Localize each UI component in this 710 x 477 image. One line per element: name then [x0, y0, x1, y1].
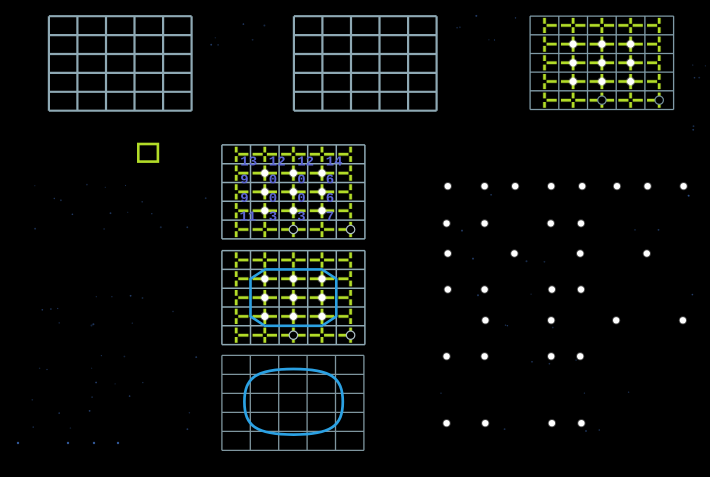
- svg-text:9: 9: [240, 172, 248, 188]
- svg-text:14: 14: [326, 154, 343, 170]
- svg-text:6: 6: [326, 172, 334, 188]
- svg-text:7: 7: [326, 210, 334, 226]
- svg-text:11: 11: [240, 210, 257, 226]
- svg-text:9: 9: [240, 191, 248, 207]
- svg-text:12: 12: [269, 154, 286, 170]
- svg-text:0: 0: [297, 172, 305, 188]
- svg-text:0: 0: [269, 191, 277, 207]
- svg-text:0: 0: [269, 172, 277, 188]
- svg-text:13: 13: [240, 154, 257, 170]
- svg-text:0: 0: [297, 191, 305, 207]
- svg-text:6: 6: [326, 191, 334, 207]
- svg-text:3: 3: [269, 210, 277, 226]
- svg-text:3: 3: [297, 210, 305, 226]
- svg-text:12: 12: [297, 154, 314, 170]
